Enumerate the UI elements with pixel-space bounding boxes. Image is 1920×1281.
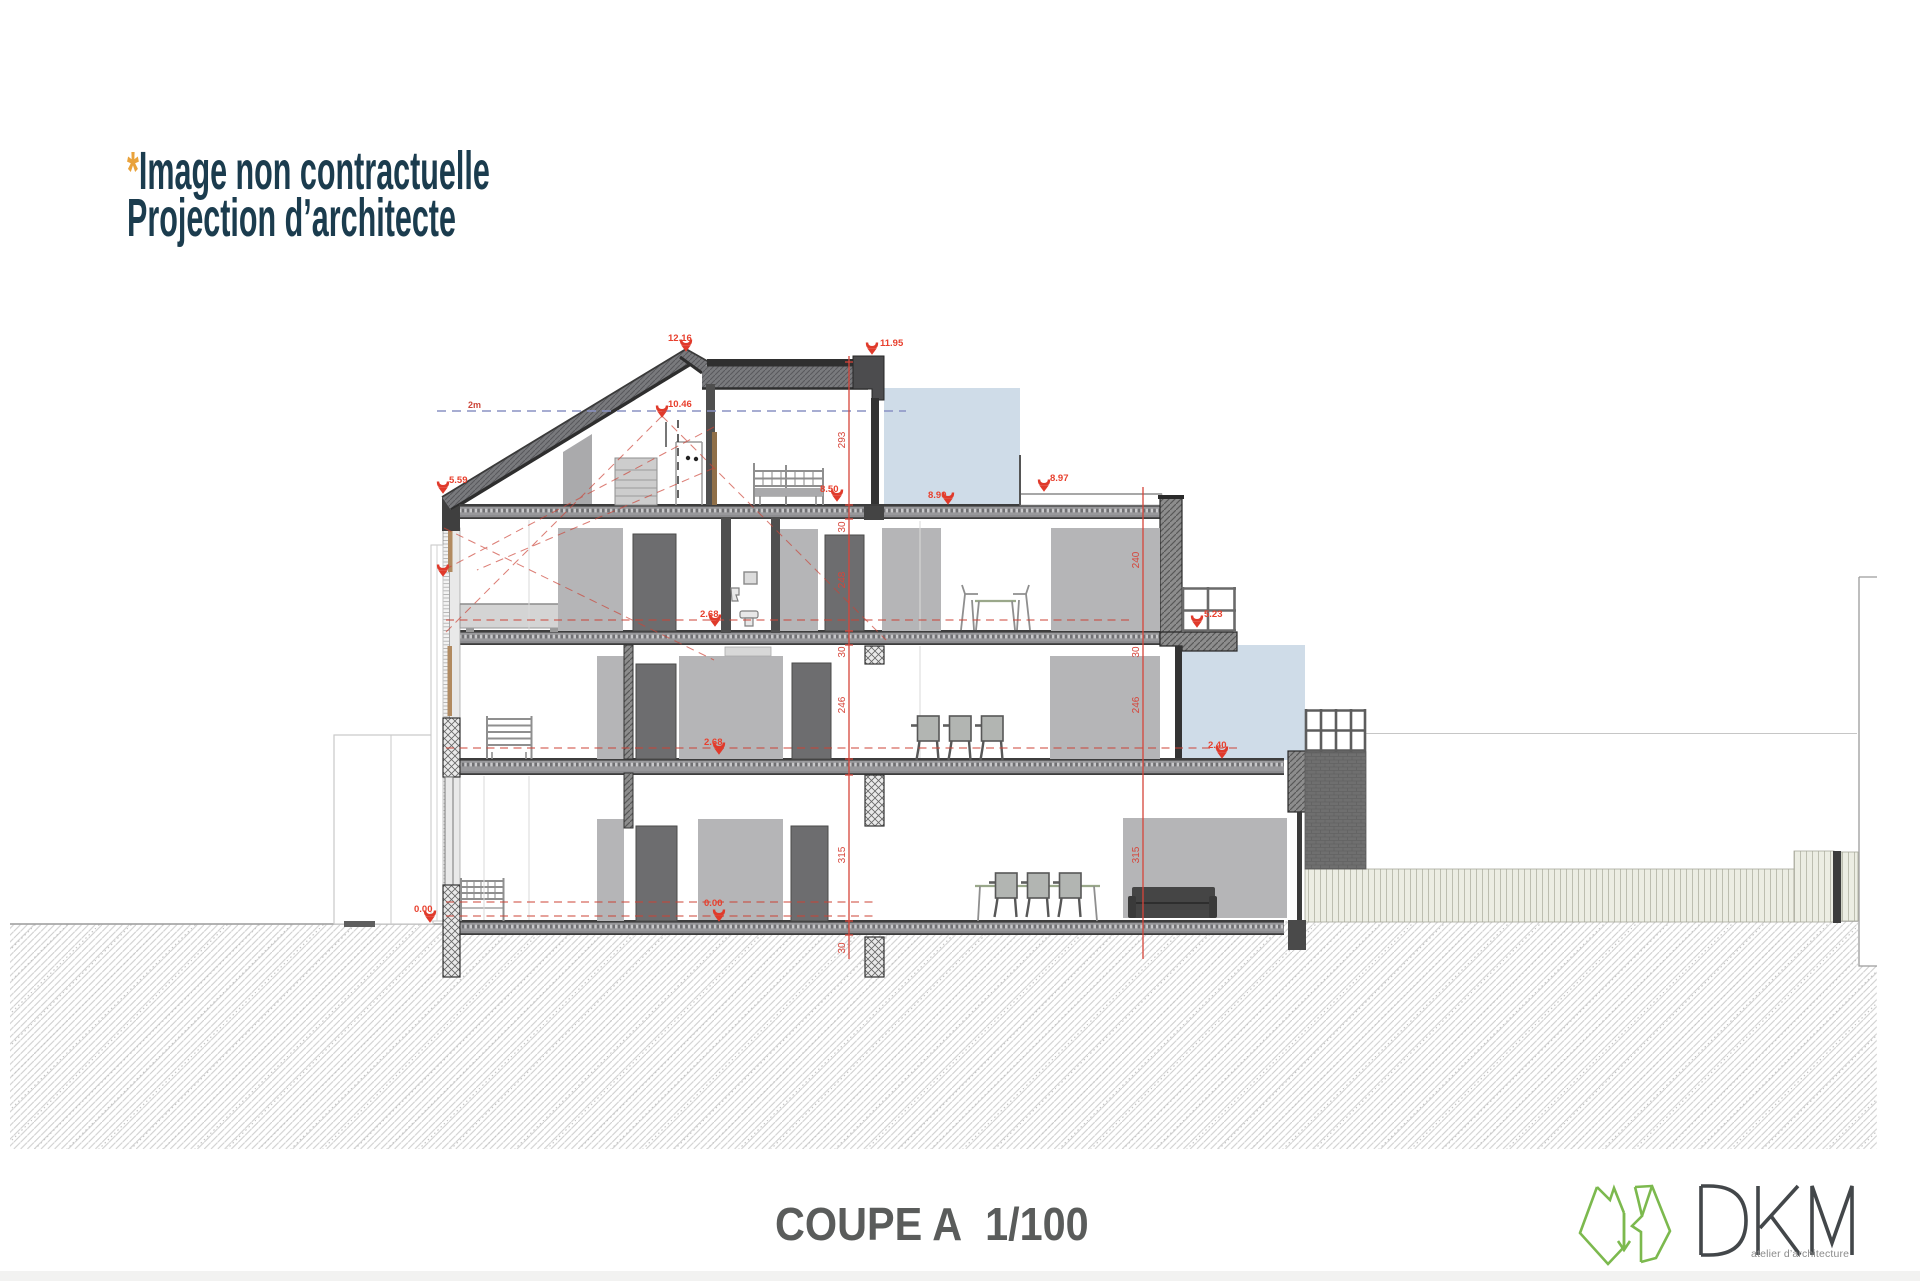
svg-text:315: 315 xyxy=(837,846,848,863)
svg-text:30: 30 xyxy=(837,521,848,533)
svg-text:8.90: 8.90 xyxy=(928,490,947,501)
svg-text:5.23: 5.23 xyxy=(1204,609,1223,620)
svg-text:11.95: 11.95 xyxy=(880,338,904,349)
svg-text:246: 246 xyxy=(1131,696,1142,713)
svg-text:0.00: 0.00 xyxy=(414,904,433,915)
svg-text:8.50: 8.50 xyxy=(820,484,839,495)
svg-text:10.46: 10.46 xyxy=(668,399,692,410)
svg-text:248: 248 xyxy=(837,571,848,588)
svg-text:30: 30 xyxy=(1131,646,1142,658)
svg-text:30: 30 xyxy=(837,942,848,954)
svg-text:2.68: 2.68 xyxy=(700,609,719,620)
svg-text:0.00: 0.00 xyxy=(704,898,723,909)
svg-text:2m: 2m xyxy=(468,400,481,410)
svg-text:240: 240 xyxy=(1131,551,1142,568)
svg-text:293: 293 xyxy=(837,431,848,448)
svg-text:315: 315 xyxy=(1131,846,1142,863)
svg-text:8.97: 8.97 xyxy=(1050,473,1069,484)
svg-text:12.16: 12.16 xyxy=(668,333,692,344)
svg-text:atelier d’architecture: atelier d’architecture xyxy=(1751,1248,1849,1260)
svg-text:2.40: 2.40 xyxy=(1208,740,1227,751)
svg-text:246: 246 xyxy=(837,696,848,713)
svg-text:30: 30 xyxy=(837,646,848,658)
svg-text:5.59: 5.59 xyxy=(449,475,468,486)
svg-text:2.68: 2.68 xyxy=(704,737,723,748)
